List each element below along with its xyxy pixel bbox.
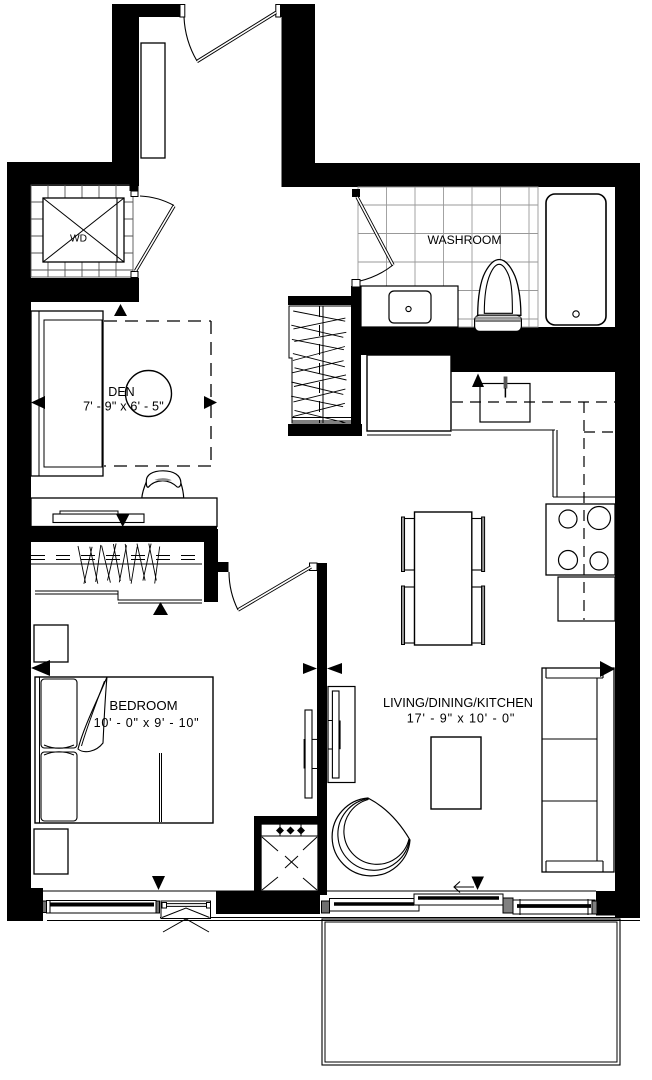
svg-text:WASHROOM: WASHROOM	[427, 233, 501, 247]
svg-text:BEDROOM: BEDROOM	[109, 698, 177, 713]
svg-text:10' - 0" x 9' - 10": 10' - 0" x 9' - 10"	[94, 716, 200, 730]
svg-text:LIVING/DINING/KITCHEN: LIVING/DINING/KITCHEN	[383, 695, 533, 710]
svg-text:DEN: DEN	[108, 385, 134, 399]
svg-text:WD: WD	[70, 234, 87, 245]
svg-text:17' - 9" x 10' - 0": 17' - 9" x 10' - 0"	[407, 712, 516, 726]
svg-text:7' - 9" x 6' - 5": 7' - 9" x 6' - 5"	[83, 400, 164, 414]
